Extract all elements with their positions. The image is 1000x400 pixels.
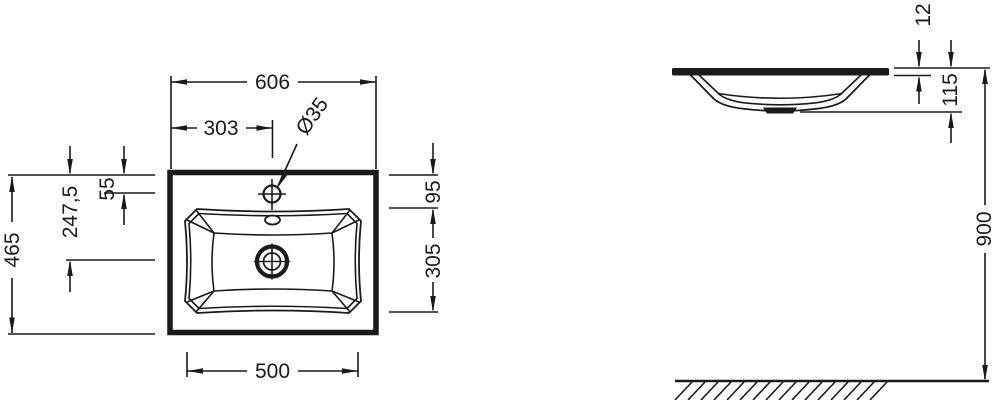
floor-hatching — [675, 382, 887, 400]
faucet-hole-icon — [258, 179, 286, 210]
arrowhead-up — [9, 176, 15, 192]
basin-corner-slope-tr — [332, 220, 359, 233]
arrowhead-down — [982, 365, 988, 381]
arrowhead-up — [948, 112, 954, 128]
dimension-basin-top-offset: 95 — [422, 143, 445, 204]
dim-installation-height-label: 900 — [973, 211, 996, 246]
dimension-installation-height: 900 — [973, 68, 996, 381]
dimension-basin-inner-depth: 305 — [422, 208, 445, 312]
washbasin-technical-drawing: 606 303 Ø35 465 — [0, 0, 1000, 400]
arrowhead-up — [121, 193, 127, 209]
dim-total-depth-label: 465 — [1, 232, 24, 267]
arrowhead-down — [67, 159, 73, 175]
dim-basin-depth-label: 115 — [939, 73, 962, 106]
basin-corner-slope-tl — [187, 220, 214, 233]
dim-faucet-hole-diameter-label: Ø35 — [292, 93, 334, 139]
dim-total-width-label: 606 — [255, 71, 290, 94]
arrowhead-up — [916, 76, 922, 92]
side-view: 12 115 900 — [672, 3, 996, 400]
arrowhead-down — [430, 159, 436, 175]
plan-view: 606 303 Ø35 465 — [1, 71, 445, 383]
arrowhead-down — [121, 159, 127, 175]
dim-faucet-offset-x-label: 303 — [203, 117, 238, 140]
dimension-total-width: 606 — [171, 71, 376, 169]
arrowhead-down — [9, 318, 15, 334]
dimension-drain-offset: 247,5 — [59, 146, 82, 292]
dim-faucet-offset-y-label: 55 — [96, 177, 119, 200]
arrowhead-up — [67, 260, 73, 276]
dim-drain-offset-label: 247,5 — [59, 186, 82, 239]
dimension-faucet-offset-y: 55 — [96, 146, 127, 225]
dimension-total-depth: 465 — [1, 176, 24, 334]
drain-outlet-profile — [763, 108, 797, 114]
arrowhead-left — [171, 125, 187, 131]
basin-profile-inner — [699, 75, 861, 105]
dim-basin-inner-depth-label: 305 — [422, 243, 445, 278]
dimension-basin-depth: 115 — [939, 40, 962, 143]
dimension-basin-inner-width: 500 — [187, 352, 358, 383]
arrowhead-left — [187, 368, 203, 374]
basin-back-rim-edge — [718, 94, 842, 99]
arrowhead-right — [342, 368, 358, 374]
dim-basin-top-offset-label: 95 — [422, 180, 445, 203]
arrowhead-down — [916, 52, 922, 68]
rim-profile — [672, 68, 889, 76]
overflow-hole-icon — [265, 216, 280, 225]
arrowhead-up — [430, 208, 436, 224]
drain-icon — [254, 244, 290, 280]
arrowhead-left — [171, 79, 187, 85]
arrowhead-up — [982, 68, 988, 84]
arrowhead-right — [360, 79, 376, 85]
arrowhead-down — [948, 52, 954, 68]
arrowhead-down — [430, 296, 436, 312]
arrowhead-right — [257, 125, 273, 131]
dim-rim-thickness-label: 12 — [912, 3, 935, 26]
dim-basin-inner-width-label: 500 — [255, 360, 290, 383]
technical-drawing-page: 606 303 Ø35 465 — [0, 0, 1000, 400]
dimension-rim-thickness: 12 — [912, 3, 935, 104]
dimension-faucet-offset-x: 303 — [171, 117, 273, 158]
